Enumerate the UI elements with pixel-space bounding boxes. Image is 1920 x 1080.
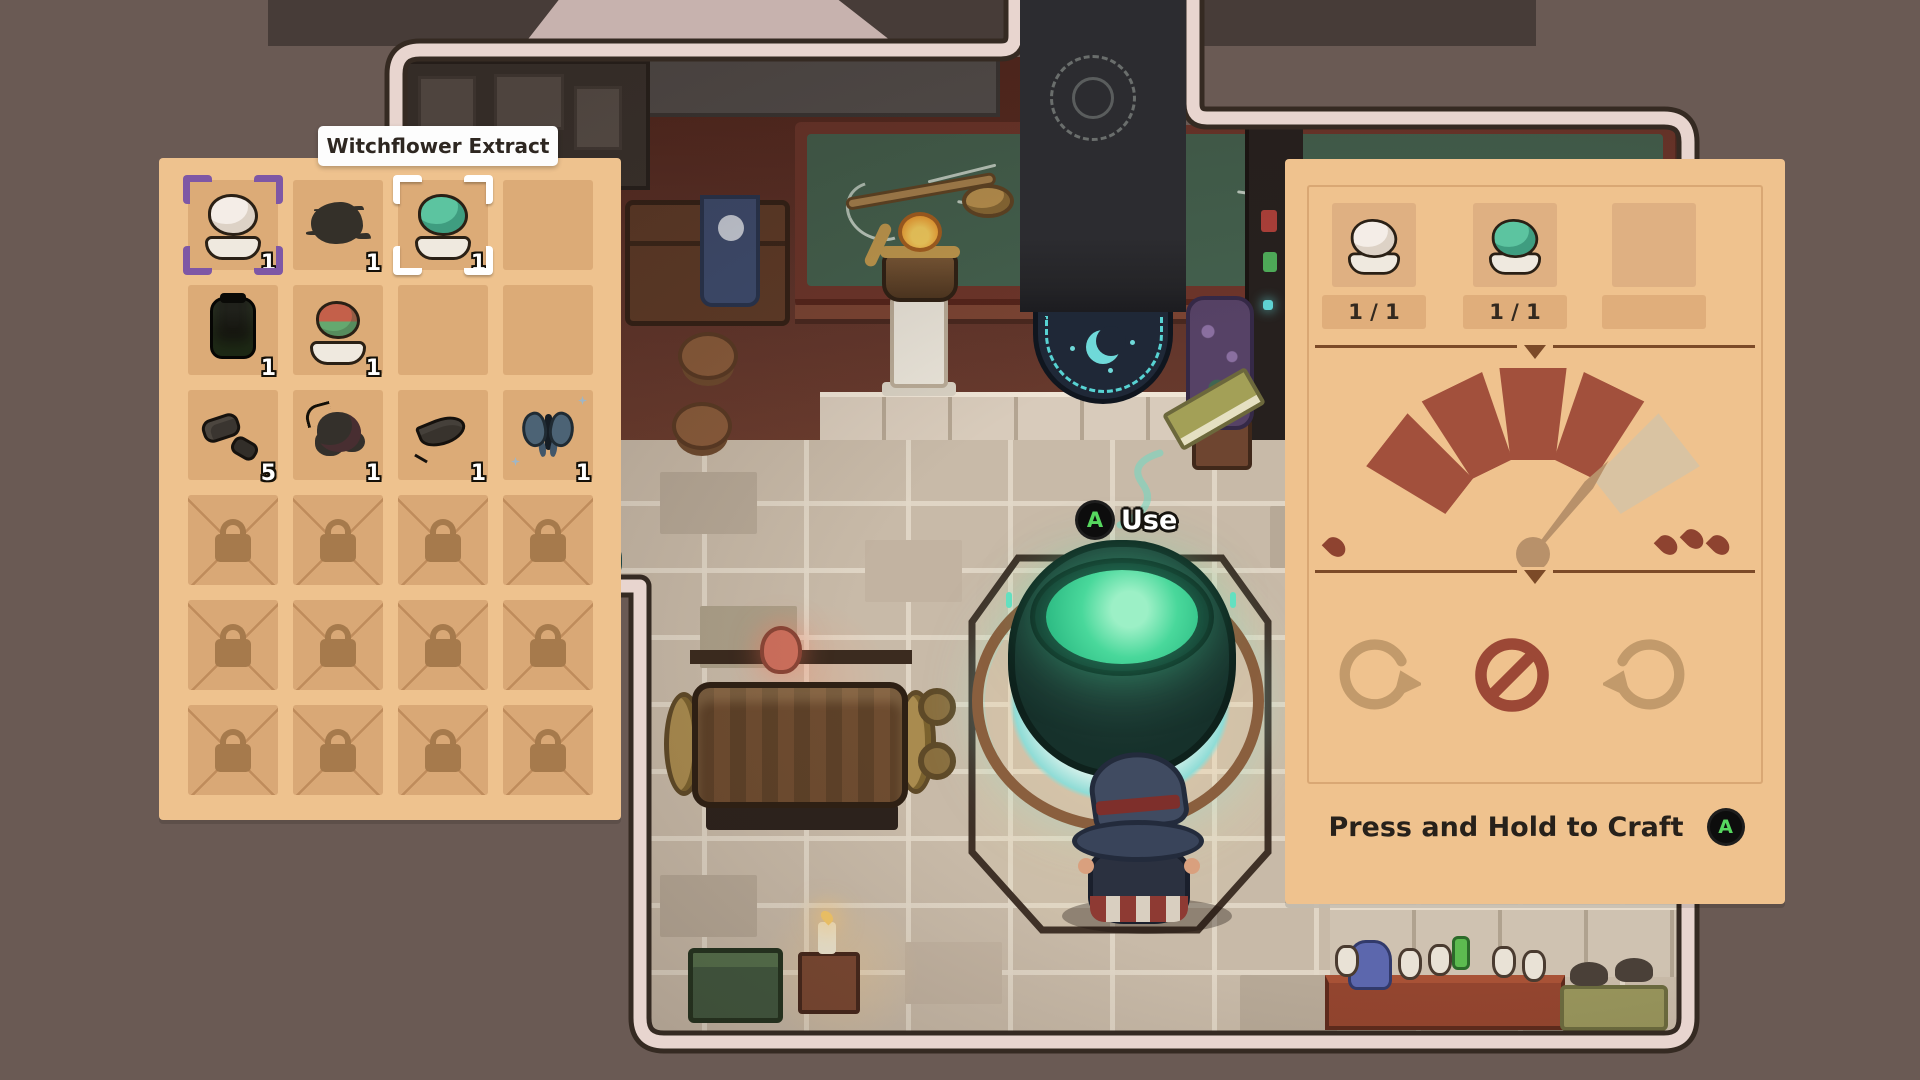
lock-icon — [215, 639, 251, 667]
lock-icon — [215, 744, 251, 772]
lock-icon — [425, 534, 461, 562]
item-count: 1 — [261, 356, 276, 381]
lock-icon — [320, 639, 356, 667]
craft-prompt[interactable]: Press and Hold to Craft A — [1285, 811, 1785, 843]
lock-icon — [320, 744, 356, 772]
inventory-slot-locked — [293, 600, 383, 690]
inventory-slot-locked — [188, 600, 278, 690]
inventory-slot-locked — [503, 495, 593, 585]
low-flame-icon — [1322, 533, 1350, 561]
inventory-slot-empty[interactable] — [503, 285, 593, 375]
triangle-down-icon — [1524, 570, 1546, 584]
high-flame-icon — [1706, 531, 1734, 559]
crescent-moon-icon — [1086, 330, 1120, 364]
green-chest — [688, 948, 783, 1023]
craft-prompt-label: Press and Hold to Craft — [1328, 812, 1683, 843]
lock-icon — [530, 534, 566, 562]
heat-gauge — [1307, 348, 1759, 573]
distiller-valve — [918, 742, 956, 780]
use-prompt[interactable]: A Use — [1078, 503, 1177, 537]
white-jug — [1522, 950, 1546, 982]
stir-clockwise-button[interactable] — [1329, 629, 1421, 721]
white-jug — [1398, 948, 1422, 980]
inventory-slot-locked — [503, 705, 593, 795]
inventory-slot-empty[interactable] — [398, 285, 488, 375]
no-stir-icon — [1466, 629, 1558, 721]
ingredient-quantity: 1 / 1 — [1463, 295, 1567, 329]
inventory-slot-locked — [188, 705, 278, 795]
stir-counterclockwise-button[interactable] — [1603, 629, 1695, 721]
white-jug — [1335, 945, 1359, 977]
ceiling-panel — [640, 55, 1000, 117]
use-prompt-label: Use — [1121, 505, 1177, 536]
lock-icon — [320, 534, 356, 562]
chest-banner — [700, 195, 760, 307]
item-tooltip: Witchflower Extract — [318, 126, 558, 166]
inventory-slot-dark-berries[interactable]: 1 — [293, 390, 383, 480]
witch-dress-hem — [1090, 896, 1188, 922]
candle — [818, 922, 836, 954]
trophy-pedestal — [890, 296, 948, 388]
lock-icon — [530, 744, 566, 772]
dark-goods — [1570, 962, 1608, 986]
candle-crate — [798, 952, 860, 1014]
wooden-stool — [672, 402, 732, 450]
inventory-panel: 1 1 1 1 1 5 1 1 1 — [159, 158, 621, 820]
a-button-icon[interactable]: A — [1710, 811, 1742, 843]
exterior-top-band — [268, 0, 1536, 46]
gauge-needle-pivot — [1516, 537, 1550, 571]
inventory-slot-green-herb[interactable]: 1 — [398, 180, 488, 270]
ingredient-slot-green-herb[interactable] — [1473, 203, 1557, 287]
tooltip-text: Witchflower Extract — [327, 134, 550, 158]
green-bottle — [1452, 936, 1470, 970]
white-jug — [1428, 944, 1452, 976]
lock-icon — [425, 744, 461, 772]
witchflower-extract-icon — [1335, 206, 1413, 284]
inventory-slot-locked — [398, 705, 488, 795]
item-count: 1 — [366, 356, 381, 381]
inventory-slot-witchflower-extract[interactable]: 1 — [188, 180, 278, 270]
item-count: 1 — [366, 251, 381, 276]
rotate-clockwise-icon — [1329, 629, 1421, 721]
a-button-icon[interactable]: A — [1078, 503, 1112, 537]
hanging-banner — [1020, 0, 1186, 312]
gauge-segment-3 — [1498, 368, 1568, 460]
trophy-flame-flower — [898, 212, 942, 252]
crafting-panel: 1 / 1 1 / 1 — [1285, 159, 1785, 904]
inventory-slot-dark-leaf[interactable]: 1 — [398, 390, 488, 480]
witch-arm — [1184, 858, 1200, 874]
lock-icon — [215, 534, 251, 562]
lock-icon — [425, 639, 461, 667]
brass-distiller — [692, 682, 908, 808]
inventory-slot-empty[interactable] — [503, 180, 593, 270]
item-count: 1 — [471, 461, 486, 486]
inventory-slot-locked — [398, 495, 488, 585]
white-jug — [1492, 946, 1516, 978]
ingredient-quantity: 1 / 1 — [1322, 295, 1426, 329]
high-flame-icon — [1654, 531, 1682, 559]
inventory-slot-locked — [293, 705, 383, 795]
witch-hat-brim — [1072, 820, 1204, 862]
inventory-slot-red-flower[interactable]: 1 — [293, 285, 383, 375]
no-stir-button[interactable] — [1466, 629, 1558, 721]
witch-arm — [1078, 858, 1094, 874]
inventory-slot-grey-stones[interactable]: 5 — [188, 390, 278, 480]
distiller-red-lamp — [760, 626, 802, 674]
item-count: 1 — [261, 251, 276, 276]
inventory-slot-dark-jar[interactable]: 1 — [188, 285, 278, 375]
green-herb-icon — [1476, 206, 1554, 284]
item-count: 1 — [366, 461, 381, 486]
ladle-bowl — [962, 184, 1014, 218]
item-count: 1 — [471, 251, 486, 276]
wooden-stool — [678, 332, 738, 380]
straw-mat — [1560, 985, 1668, 1031]
game-screen: { "game": { "buttons": { "a": "A" } }, "… — [0, 0, 1920, 1080]
section-divider — [1315, 570, 1755, 573]
lock-icon — [530, 639, 566, 667]
distiller-valve — [918, 688, 956, 726]
ingredient-slot-empty[interactable] — [1612, 203, 1696, 287]
high-flame-icon — [1680, 525, 1708, 553]
storage-chest — [625, 200, 790, 326]
item-count: 5 — [261, 461, 276, 486]
inventory-slot-locked — [503, 600, 593, 690]
ingredient-slot-witchflower-extract[interactable] — [1332, 203, 1416, 287]
dark-goods — [1615, 958, 1653, 982]
inventory-slot-black-powder[interactable]: 1 — [293, 180, 383, 270]
cauldron-liquid — [1046, 570, 1198, 664]
rotate-counterclockwise-icon — [1603, 629, 1695, 721]
golden-ladle-trophy — [882, 252, 958, 302]
ingredient-quantity-empty — [1602, 295, 1706, 329]
inventory-slot-butterfly[interactable]: 1 — [503, 390, 593, 480]
inventory-slot-locked — [398, 600, 488, 690]
item-count: 1 — [576, 461, 591, 486]
inventory-slot-locked — [188, 495, 278, 585]
inventory-slot-locked — [293, 495, 383, 585]
